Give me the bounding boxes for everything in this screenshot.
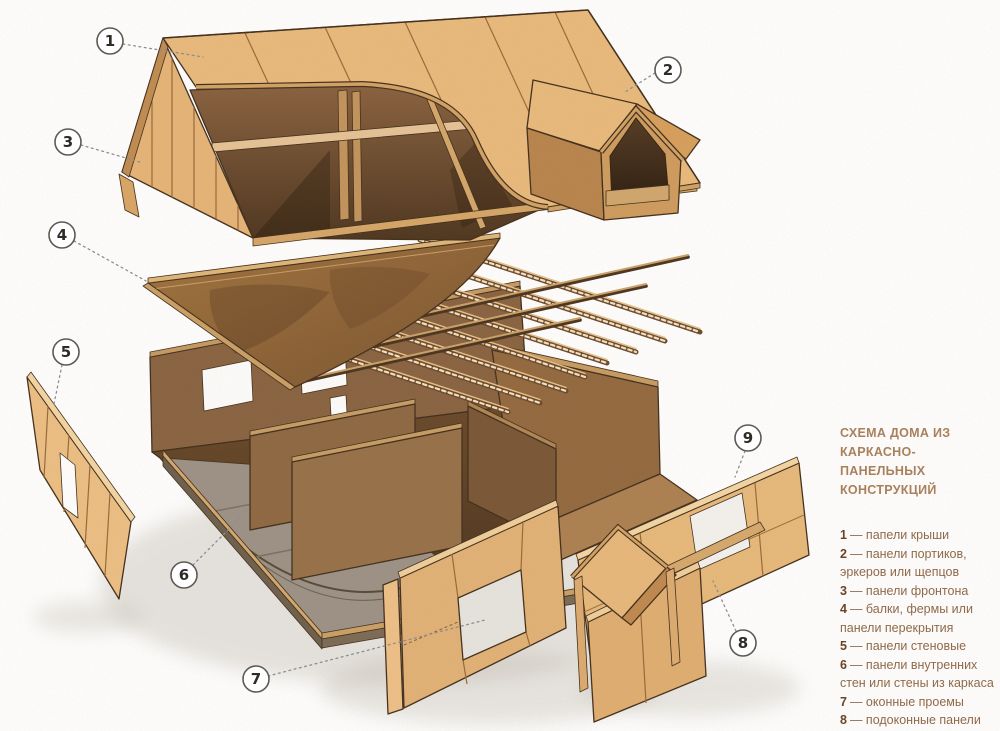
legend-item-5: 5— панели стеновые xyxy=(840,637,1000,656)
legend-item-text: — панели фронтона xyxy=(850,584,968,598)
callout-4-label: 4 xyxy=(57,226,67,244)
callout-9: 9 xyxy=(735,425,761,451)
legend-item-number: 6 xyxy=(840,658,847,672)
legend-item-number: 7 xyxy=(840,695,847,709)
legend-item-1: 1— папели крыши xyxy=(840,526,1000,545)
callout-5-label: 5 xyxy=(61,343,71,361)
legend-item-number: 3 xyxy=(840,584,847,598)
legend-title: СХЕМА ДОМА ИЗ КАРКАСНО- ПАНЕЛЬНЫХ КОНСТР… xyxy=(840,424,1000,500)
legend-item-number: 5 xyxy=(840,639,847,653)
legend-item-2: 2— панели портиков, эркеров или щепцов xyxy=(840,545,1000,582)
legend-title-line1: СХЕМА ДОМА ИЗ КАРКАСНО- xyxy=(840,424,1000,462)
callout-8-label: 8 xyxy=(738,634,748,652)
legend: СХЕМА ДОМА ИЗ КАРКАСНО- ПАНЕЛЬНЫХ КОНСТР… xyxy=(840,424,1000,731)
legend-item-text: — балки, фермы или панели перекрытия xyxy=(840,602,973,635)
legend-item-text: — подоконные панели xyxy=(850,713,981,727)
legend-items: 1— папели крыши 2— панели портиков, эрке… xyxy=(840,526,1000,731)
legend-item-text: — панели стеновые xyxy=(850,639,966,653)
callout-2-label: 2 xyxy=(663,61,673,79)
legend-item-number: 1 xyxy=(840,528,847,542)
legend-item-text: — папели крыши xyxy=(850,528,949,542)
legend-item-text: — панели внутренних стен или стены из ка… xyxy=(840,658,994,691)
legend-item-text: — оконные проемы xyxy=(850,695,964,709)
callout-8: 8 xyxy=(730,630,756,656)
legend-item-number: 2 xyxy=(840,547,847,561)
callout-7-label: 7 xyxy=(251,670,261,688)
callout-1: 1 xyxy=(97,28,123,54)
callout-3-label: 3 xyxy=(63,133,73,151)
diagram-page: 1 2 3 4 5 6 7 8 9 СХЕМА ДОМА ИЗ КАРКАСНО… xyxy=(0,0,1000,731)
callout-4: 4 xyxy=(49,222,75,248)
callout-7: 7 xyxy=(243,666,269,692)
legend-item-number: 8 xyxy=(840,713,847,727)
legend-item-4: 4— балки, фермы или панели перекрытия xyxy=(840,600,1000,637)
callout-5: 5 xyxy=(53,339,79,365)
callout-9-label: 9 xyxy=(743,429,753,447)
legend-title-line2: ПАНЕЛЬНЫХ КОНСТРУКЦИЙ xyxy=(840,462,1000,500)
legend-item-8: 8— подоконные панели xyxy=(840,711,1000,730)
legend-item-3: 3— панели фронтона xyxy=(840,582,1000,601)
legend-item-number: 4 xyxy=(840,602,847,616)
callout-6-label: 6 xyxy=(179,566,189,584)
callout-3: 3 xyxy=(55,129,81,155)
legend-item-text: — панели портиков, эркеров или щепцов xyxy=(840,547,967,580)
legend-item-6: 6— панели внутренних стен или стены из к… xyxy=(840,656,1000,693)
legend-item-7: 7— оконные проемы xyxy=(840,693,1000,712)
callout-6: 6 xyxy=(171,562,197,588)
callout-1-label: 1 xyxy=(105,32,115,50)
callout-2: 2 xyxy=(655,57,681,83)
